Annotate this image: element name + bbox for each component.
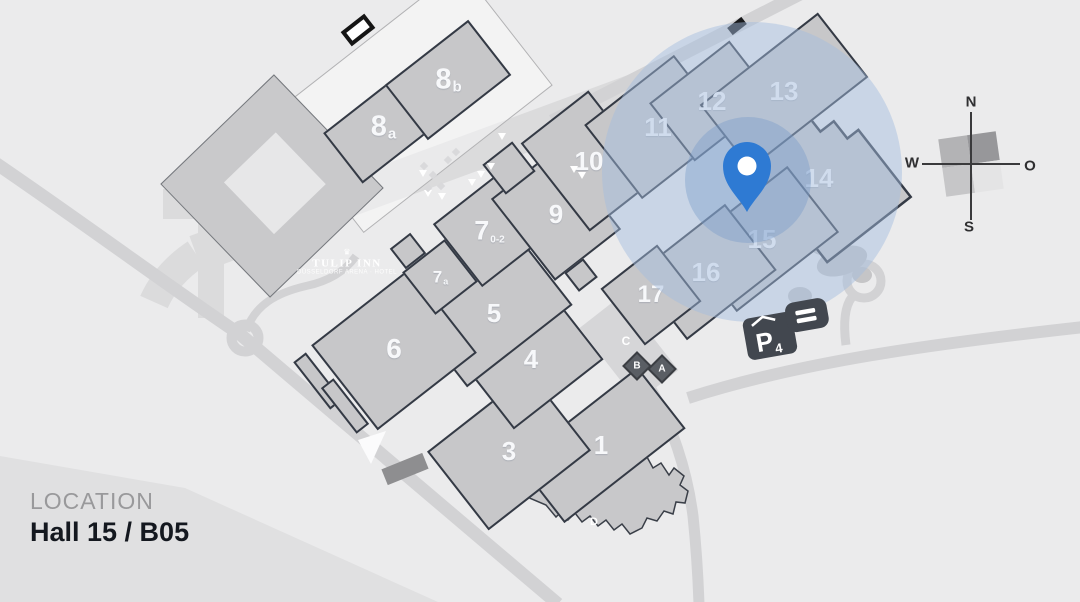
compass-o: O xyxy=(1024,158,1036,175)
location-value: Hall 15 / B05 xyxy=(30,517,189,548)
compass-w: W xyxy=(905,155,919,172)
location-label: LOCATION xyxy=(30,488,189,515)
hotel-logo-icon: ♛ xyxy=(297,248,397,257)
compass-axis-we xyxy=(922,163,1020,165)
map-canvas: 1345670-27a8a8b91011121314151617 ♛ TULIP… xyxy=(0,0,1080,602)
compass-n: N xyxy=(966,94,977,111)
location-pin xyxy=(721,140,773,216)
compass-axis-ns xyxy=(970,112,972,220)
parking-p4-icon: P 4 xyxy=(736,296,836,362)
hotel-tulip-inn: ♛ TULIP INN DÜSSELDORF ARENA · HOTEL xyxy=(297,248,397,275)
location-block: LOCATION Hall 15 / B05 xyxy=(30,488,189,548)
hotel-tagline: DÜSSELDORF ARENA · HOTEL xyxy=(297,269,397,276)
entrance-c-label: C xyxy=(622,334,631,348)
compass-s: S xyxy=(964,219,974,236)
entrance-d-label: D xyxy=(590,516,598,528)
entrance-b-label: B xyxy=(629,358,646,375)
entrance-a-label: A xyxy=(654,361,671,378)
hotel-name: TULIP INN xyxy=(297,257,397,269)
